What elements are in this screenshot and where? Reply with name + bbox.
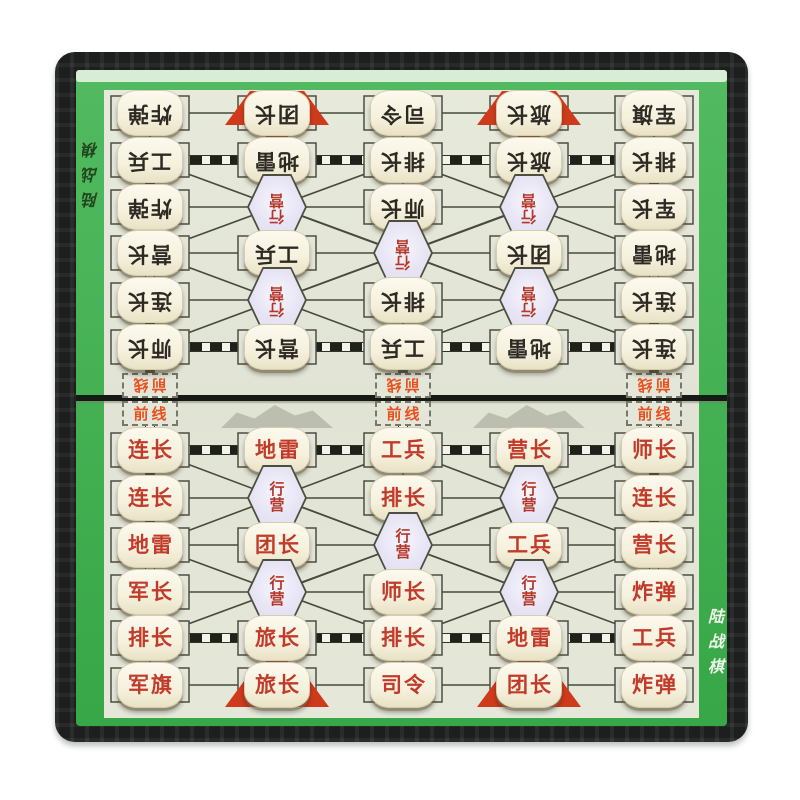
piece-tile[interactable]: 连长 [117, 427, 183, 473]
camp-inner: 行 营 [375, 222, 431, 284]
piece-tile[interactable]: 工兵 [370, 427, 436, 473]
camp-inner: 行 营 [249, 561, 305, 623]
piece-label: 连长 [126, 440, 174, 461]
piece-tile[interactable]: 团长 [244, 90, 310, 136]
piece-label: 排长 [379, 488, 427, 509]
frontline-label: 前线 [122, 401, 178, 426]
piece-tile[interactable]: 排长 [370, 615, 436, 661]
piece-label: 排长 [126, 628, 174, 649]
piece-tile[interactable]: 炸弹 [621, 569, 687, 615]
piece-label: 连长 [630, 337, 678, 358]
piece-label: 师长 [126, 337, 174, 358]
piece-label: 营长 [253, 337, 301, 358]
piece-label: 地雷 [505, 337, 553, 358]
camp-label: 行 营 [521, 191, 536, 223]
piece-label: 炸弹 [630, 582, 678, 603]
piece-label: 团长 [505, 243, 553, 264]
piece-tile[interactable]: 旅长 [244, 615, 310, 661]
piece-label: 军旗 [126, 675, 174, 696]
piece-tile[interactable]: 地雷 [117, 522, 183, 568]
piece-label: 师长 [630, 440, 678, 461]
piece-label: 炸弹 [126, 103, 174, 124]
piece-label: 连长 [630, 488, 678, 509]
piece-tile[interactable]: 连长 [621, 324, 687, 370]
piece-label: 旅长 [253, 628, 301, 649]
piece-tile[interactable]: 营长 [117, 230, 183, 276]
piece-label: 旅长 [253, 675, 301, 696]
piece-label: 营长 [505, 440, 553, 461]
camp-label: 行 营 [521, 284, 536, 316]
frontline-label: 前线 [626, 373, 682, 398]
piece-label: 排长 [379, 150, 427, 171]
board-title-top-left: 陆战棋 [80, 98, 104, 208]
camp-label: 行 营 [521, 576, 536, 608]
piece-label: 连长 [126, 488, 174, 509]
piece-tile[interactable]: 工兵 [621, 615, 687, 661]
camp-inner: 行 营 [249, 269, 305, 331]
frontline-label: 前线 [375, 401, 431, 426]
piece-tile[interactable]: 排长 [621, 137, 687, 183]
piece-tile[interactable]: 团长 [496, 662, 562, 708]
piece-tile[interactable]: 连长 [621, 475, 687, 521]
piece-tile[interactable]: 旅长 [244, 662, 310, 708]
camp-label: 行 营 [269, 576, 284, 608]
piece-label: 工兵 [126, 150, 174, 171]
piece-label: 团长 [253, 535, 301, 556]
piece-tile[interactable]: 连长 [117, 277, 183, 323]
piece-tile[interactable]: 司令 [370, 90, 436, 136]
piece-tile[interactable]: 工兵 [370, 324, 436, 370]
piece-label: 军旗 [630, 103, 678, 124]
piece-tile[interactable]: 旅长 [496, 90, 562, 136]
piece-tile[interactable]: 炸弹 [621, 662, 687, 708]
piece-tile[interactable]: 连长 [117, 475, 183, 521]
piece-label: 连长 [126, 290, 174, 311]
piece-label: 排长 [379, 628, 427, 649]
camp-inner: 行 营 [501, 269, 557, 331]
piece-label: 连长 [630, 290, 678, 311]
piece-label: 炸弹 [126, 197, 174, 218]
piece-tile[interactable]: 军旗 [621, 90, 687, 136]
piece-label: 排长 [630, 150, 678, 171]
piece-tile[interactable]: 炸弹 [117, 90, 183, 136]
camp-inner: 行 营 [501, 561, 557, 623]
piece-tile[interactable]: 地雷 [496, 615, 562, 661]
piece-tile[interactable]: 军长 [117, 569, 183, 615]
piece-tile[interactable]: 营长 [244, 324, 310, 370]
piece-label: 地雷 [253, 150, 301, 171]
piece-label: 营长 [630, 535, 678, 556]
camp-inner: 行 营 [249, 467, 305, 529]
piece-label: 工兵 [505, 535, 553, 556]
piece-label: 地雷 [630, 243, 678, 264]
piece-label: 地雷 [126, 535, 174, 556]
piece-tile[interactable]: 排长 [370, 277, 436, 323]
piece-tile[interactable]: 营长 [621, 522, 687, 568]
piece-tile[interactable]: 工兵 [117, 137, 183, 183]
frontline-label: 前线 [122, 373, 178, 398]
piece-tile[interactable]: 排长 [370, 137, 436, 183]
piece-label: 地雷 [505, 628, 553, 649]
camp-inner: 行 营 [501, 176, 557, 238]
camp-label: 行 营 [395, 237, 410, 269]
camp-label: 行 营 [395, 529, 410, 561]
piece-label: 师长 [379, 197, 427, 218]
piece-tile[interactable]: 师长 [621, 427, 687, 473]
piece-label: 旅长 [505, 103, 553, 124]
board-title-bottom-right: 陆战棋 [702, 608, 726, 718]
piece-label: 团长 [505, 675, 553, 696]
piece-label: 炸弹 [630, 675, 678, 696]
camp-label: 行 营 [521, 482, 536, 514]
piece-tile[interactable]: 军长 [621, 184, 687, 230]
piece-label: 工兵 [379, 440, 427, 461]
camp-label: 行 营 [269, 482, 284, 514]
piece-tile[interactable]: 地雷 [496, 324, 562, 370]
piece-label: 地雷 [253, 440, 301, 461]
piece-label: 营长 [126, 243, 174, 264]
piece-tile[interactable]: 司令 [370, 662, 436, 708]
camp-label: 行 营 [269, 284, 284, 316]
piece-label: 司令 [379, 103, 427, 124]
piece-label: 工兵 [379, 337, 427, 358]
piece-tile[interactable]: 师长 [117, 324, 183, 370]
piece-label: 旅长 [505, 150, 553, 171]
piece-label: 司令 [379, 675, 427, 696]
piece-label: 工兵 [253, 243, 301, 264]
camp-inner: 行 营 [501, 467, 557, 529]
piece-tile[interactable]: 炸弹 [117, 184, 183, 230]
piece-label: 团长 [253, 103, 301, 124]
camp-inner: 行 营 [249, 176, 305, 238]
piece-tile[interactable]: 师长 [370, 569, 436, 615]
frontline-label: 前线 [375, 373, 431, 398]
piece-label: 工兵 [630, 628, 678, 649]
piece-tile[interactable]: 军旗 [117, 662, 183, 708]
camp-label: 行 营 [269, 191, 284, 223]
piece-tile[interactable]: 排长 [117, 615, 183, 661]
game-board: 前线前线前线前线前线前线炸弹团长司令旅长军旗工兵地雷排长旅长排长炸弹行 营师长行… [0, 0, 800, 800]
camp-inner: 行 营 [375, 514, 431, 576]
piece-label: 军长 [126, 582, 174, 603]
piece-label: 军长 [630, 197, 678, 218]
piece-label: 师长 [379, 582, 427, 603]
piece-tile[interactable]: 地雷 [621, 230, 687, 276]
piece-label: 排长 [379, 290, 427, 311]
piece-tile[interactable]: 连长 [621, 277, 687, 323]
frontline-label: 前线 [626, 401, 682, 426]
